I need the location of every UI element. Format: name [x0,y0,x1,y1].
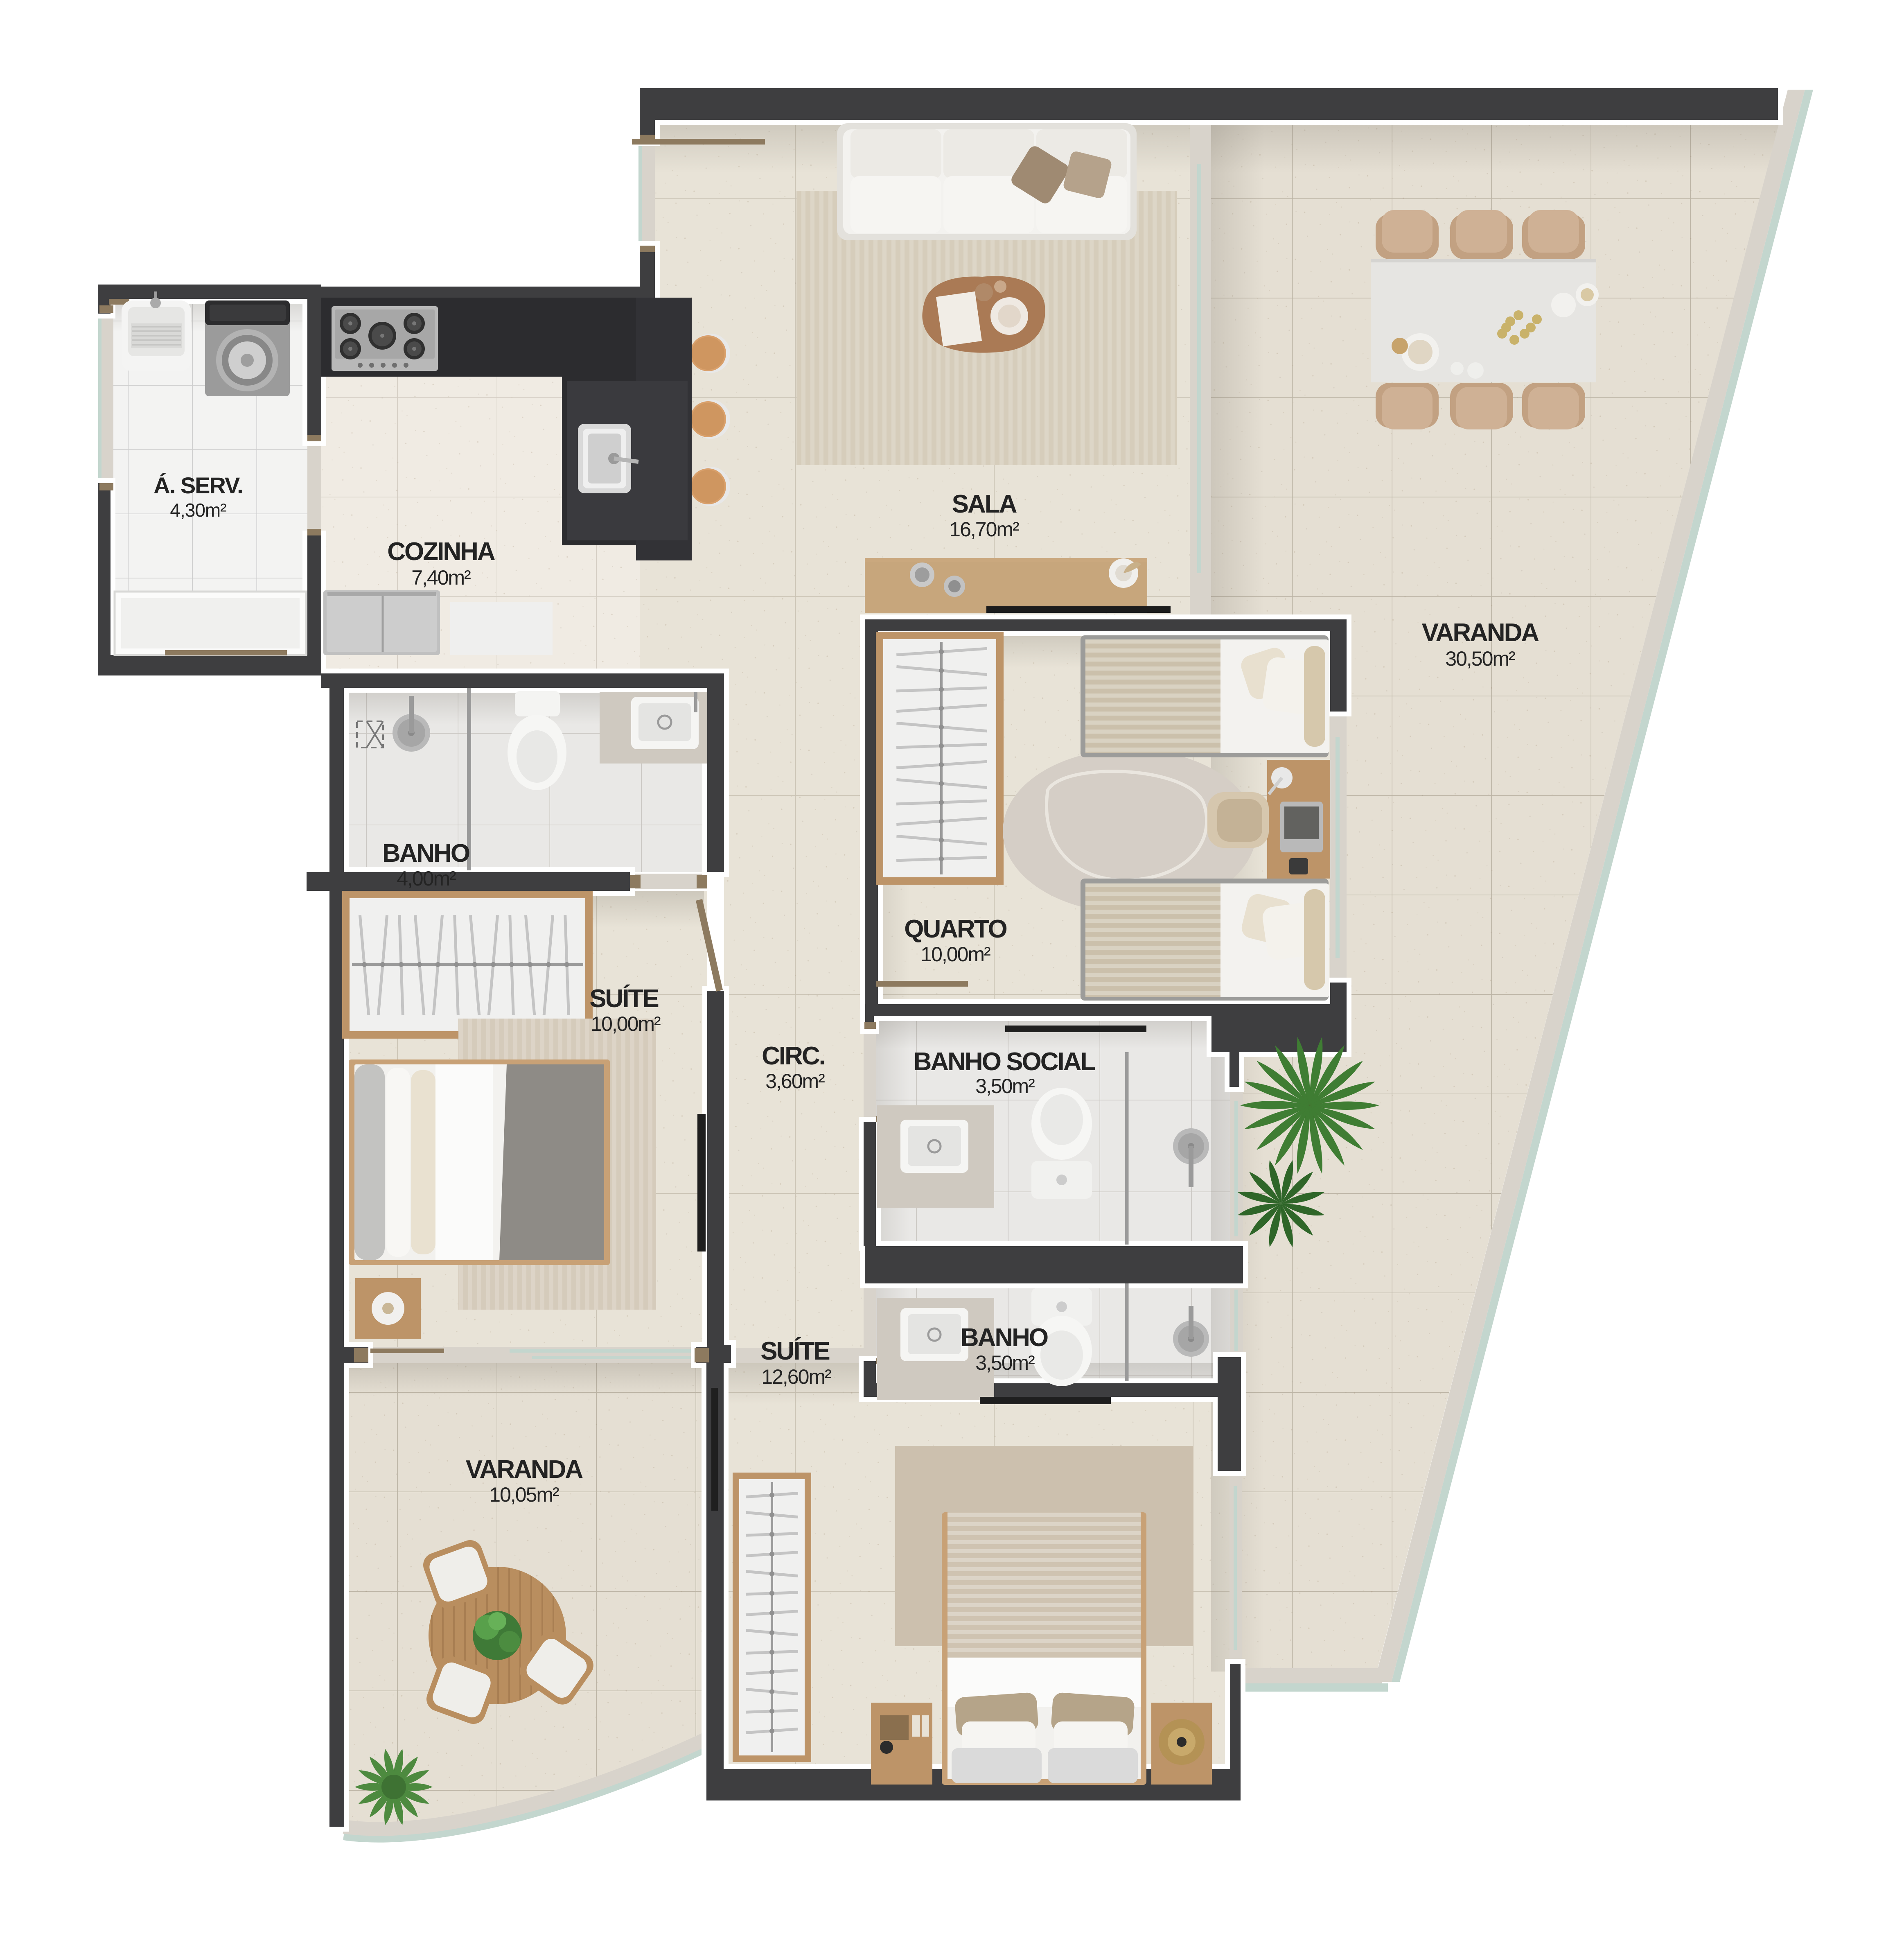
svg-text:QUARTO: QUARTO [904,915,1006,943]
svg-text:CIRC.: CIRC. [762,1042,825,1070]
svg-text:16,70m²: 16,70m² [949,518,1019,541]
svg-text:12,60m²: 12,60m² [761,1365,831,1388]
svg-text:VARANDA: VARANDA [1422,619,1539,647]
svg-text:10,05m²: 10,05m² [489,1483,559,1506]
svg-text:SALA: SALA [952,490,1017,518]
svg-text:4,00m²: 4,00m² [397,867,456,890]
svg-text:3,50m²: 3,50m² [975,1075,1035,1098]
svg-text:BANHO: BANHO [961,1324,1048,1352]
svg-text:10,00m²: 10,00m² [920,943,990,966]
svg-text:3,60m²: 3,60m² [765,1070,825,1093]
svg-text:Á. SERV.: Á. SERV. [153,472,242,498]
svg-text:SUÍTE: SUÍTE [589,985,658,1013]
svg-text:BANHO: BANHO [382,839,469,867]
svg-text:10,00m²: 10,00m² [591,1012,661,1035]
svg-text:COZINHA: COZINHA [387,538,495,566]
svg-text:7,40m²: 7,40m² [411,566,471,589]
svg-text:30,50m²: 30,50m² [1445,647,1515,670]
svg-text:SUÍTE: SUÍTE [760,1337,829,1365]
svg-text:3,50m²: 3,50m² [975,1351,1035,1374]
svg-text:VARANDA: VARANDA [466,1455,583,1484]
svg-text:4,30m²: 4,30m² [170,499,226,521]
svg-text:BANHO SOCIAL: BANHO SOCIAL [914,1048,1095,1076]
